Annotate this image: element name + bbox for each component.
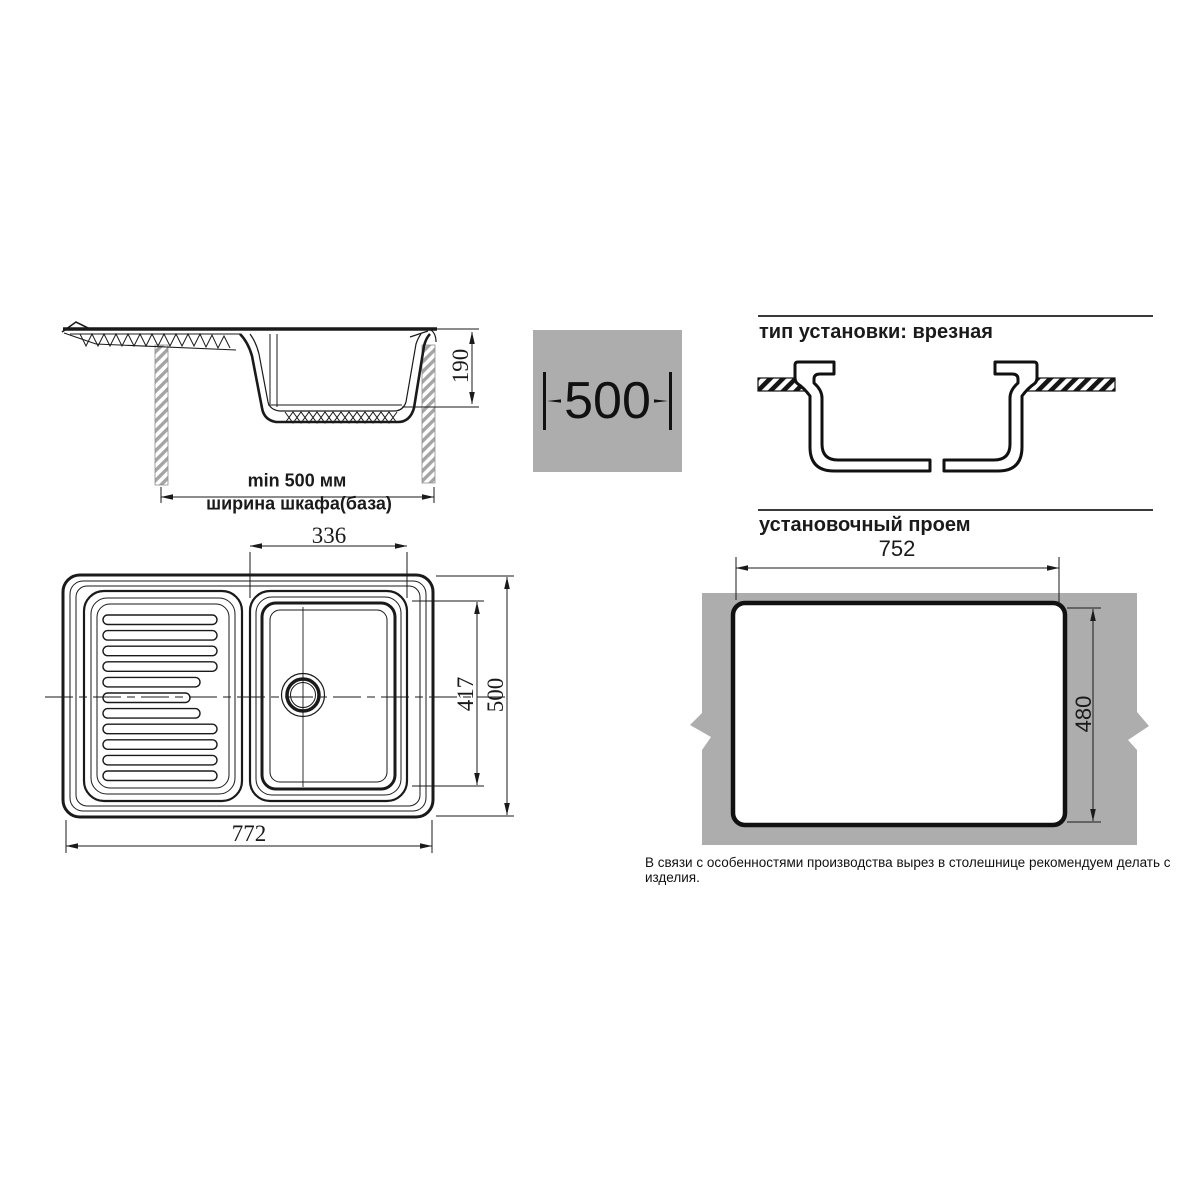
opening-drawing (685, 540, 1160, 848)
section-divider-bottom (758, 509, 1153, 511)
sink-rim-profile-right (944, 362, 1037, 471)
badge-value: 500 (561, 375, 654, 427)
top-view-drawing (30, 525, 525, 860)
drainboard (84, 591, 242, 801)
dim-772-label: 772 (232, 821, 267, 847)
cabinet-wall-right (422, 345, 435, 483)
cabinet-wall-left (155, 345, 168, 485)
production-footnote: В связи с особенностями производства выр… (645, 855, 1191, 885)
sink-technical-drawing: 500 тип установки: врезная (0, 0, 1191, 1191)
sink-side-profile (62, 322, 437, 423)
cabinet-width-label: ширина шкафа(база) (206, 494, 392, 515)
dim-bar-right (669, 372, 672, 430)
dim-480-label: 480 (1071, 696, 1097, 733)
sink-rim-profile-left (795, 362, 930, 471)
installation-type-title: тип установки: врезная (759, 321, 993, 344)
dim-500-label: 500 (483, 678, 509, 713)
section-divider-top (758, 315, 1153, 317)
dim-752-label: 752 (879, 536, 916, 562)
dim-190-label: 190 (448, 349, 474, 384)
cutout-rect (733, 603, 1065, 825)
bowl-top (250, 591, 407, 801)
dim-417-label: 417 (453, 677, 479, 712)
min-width-label: min 500 мм (248, 471, 347, 492)
cabinet-width-badge: 500 (533, 330, 682, 472)
opening-title: установочный проем (759, 514, 971, 537)
inset-mount-cross-section (750, 348, 1170, 483)
arrow-left-icon (546, 395, 561, 407)
dim-336-label: 336 (312, 523, 347, 549)
arrow-right-icon (654, 395, 669, 407)
drainboard-ribs (103, 615, 217, 781)
